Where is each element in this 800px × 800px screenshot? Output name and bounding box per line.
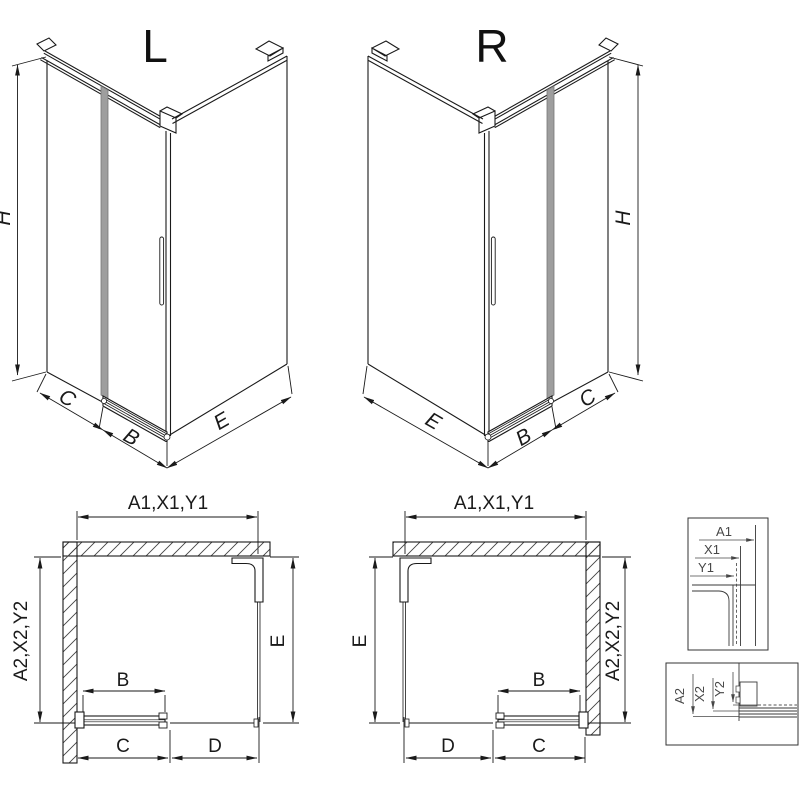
right-glass-panel — [485, 61, 609, 437]
callout-a1: A1 — [716, 524, 732, 539]
dimension-line-e — [364, 397, 488, 468]
handle-block — [496, 722, 504, 728]
callout-a2: A2 — [672, 688, 687, 704]
iso-right-dimensions: H E B C — [363, 57, 643, 468]
dim-label-d: D — [441, 736, 455, 757]
handle-block — [159, 722, 167, 728]
drawing-sheet: L H — [0, 0, 800, 800]
rail-end-cap — [37, 38, 56, 51]
wall-left — [63, 542, 77, 763]
dim-label-c: C — [532, 736, 546, 757]
dim-label-b: B — [533, 670, 546, 691]
view-label-left: L — [142, 20, 168, 72]
profile-section — [692, 525, 756, 646]
fixed-glass-panel — [403, 602, 406, 722]
dim-label-width: A1,X1,Y1 — [128, 493, 208, 514]
sliding-door-plan — [405, 712, 588, 728]
dim-label-b: B — [512, 424, 536, 451]
guide-end-cap — [254, 719, 258, 727]
rail-end-cap — [599, 38, 618, 51]
dim-label-e: E — [268, 635, 289, 648]
wall-right — [586, 542, 600, 735]
callout-y2: Y2 — [712, 681, 727, 697]
dim-label-e: E — [421, 408, 445, 435]
corner-post — [166, 131, 171, 436]
iso-view-left: L H — [0, 20, 292, 468]
wall-profile — [579, 712, 588, 728]
dim-b — [498, 691, 580, 713]
callout-y1: Y1 — [698, 560, 714, 575]
left-glass-panel — [47, 61, 171, 437]
guide-end-cap — [405, 719, 409, 727]
rail-section — [736, 663, 797, 721]
dim-label-height: H — [612, 210, 635, 226]
door-panel — [498, 716, 579, 725]
sliding-door-glass-edge — [101, 86, 108, 399]
view-label-right: R — [475, 20, 508, 72]
dim-label-height: H — [0, 210, 15, 226]
detail-bottom-rail: A2 X2 Y2 — [666, 663, 798, 745]
wall-profile — [75, 712, 84, 728]
dim-label-c: C — [55, 385, 80, 413]
detail-top-profile: A1 X1 Y1 — [688, 518, 768, 650]
corner-profile — [232, 558, 263, 602]
extension-line — [363, 366, 367, 394]
plan-view-right: A1,X1,Y1 A2,X2,Y2 E B — [350, 493, 631, 763]
iso-view-right: R H E — [363, 20, 643, 468]
door-handle — [491, 237, 495, 305]
wall-bracket — [256, 41, 283, 61]
door-handle — [160, 237, 164, 305]
iso-left-dimensions: H C B E — [0, 57, 292, 468]
dim-label-b: B — [117, 670, 130, 691]
dim-label-d: D — [208, 736, 222, 757]
door-panel — [84, 716, 165, 725]
extension-line — [288, 366, 292, 394]
side-glass-panel — [168, 41, 287, 436]
wall-bracket — [372, 41, 399, 61]
dimension-line-e — [167, 397, 291, 468]
wall-top — [63, 542, 270, 556]
fixed-glass-panel — [258, 602, 261, 722]
handle-block — [496, 713, 504, 719]
callout-x2: X2 — [692, 686, 707, 702]
dim-label-e: E — [210, 407, 234, 434]
wall-top — [393, 542, 600, 556]
callout-x1: X1 — [704, 542, 720, 557]
dim-b — [83, 691, 165, 713]
sliding-door-glass-edge — [547, 86, 554, 399]
plan-view-left: A1,X1,Y1 A2,X2,Y2 E B — [11, 493, 299, 763]
dim-label-c: C — [575, 384, 600, 412]
detail-callouts: A1 X1 Y1 — [690, 524, 754, 576]
dim-label-depth: A2,X2,Y2 — [11, 601, 32, 681]
dim-label-b: B — [119, 424, 143, 451]
handle-block — [159, 713, 167, 719]
corner-post — [485, 131, 490, 436]
sliding-door-plan — [75, 712, 258, 728]
roller-carriage — [740, 682, 757, 706]
dim-label-c: C — [116, 736, 130, 757]
dim-label-width: A1,X1,Y1 — [454, 493, 534, 514]
corner-profile — [400, 558, 431, 602]
shower-enclosure-technical-drawing: L H — [0, 0, 800, 800]
dim-label-depth: A2,X2,Y2 — [603, 601, 624, 681]
dim-e — [369, 557, 400, 723]
side-glass-panel — [368, 41, 487, 436]
dim-label-e: E — [350, 635, 371, 648]
